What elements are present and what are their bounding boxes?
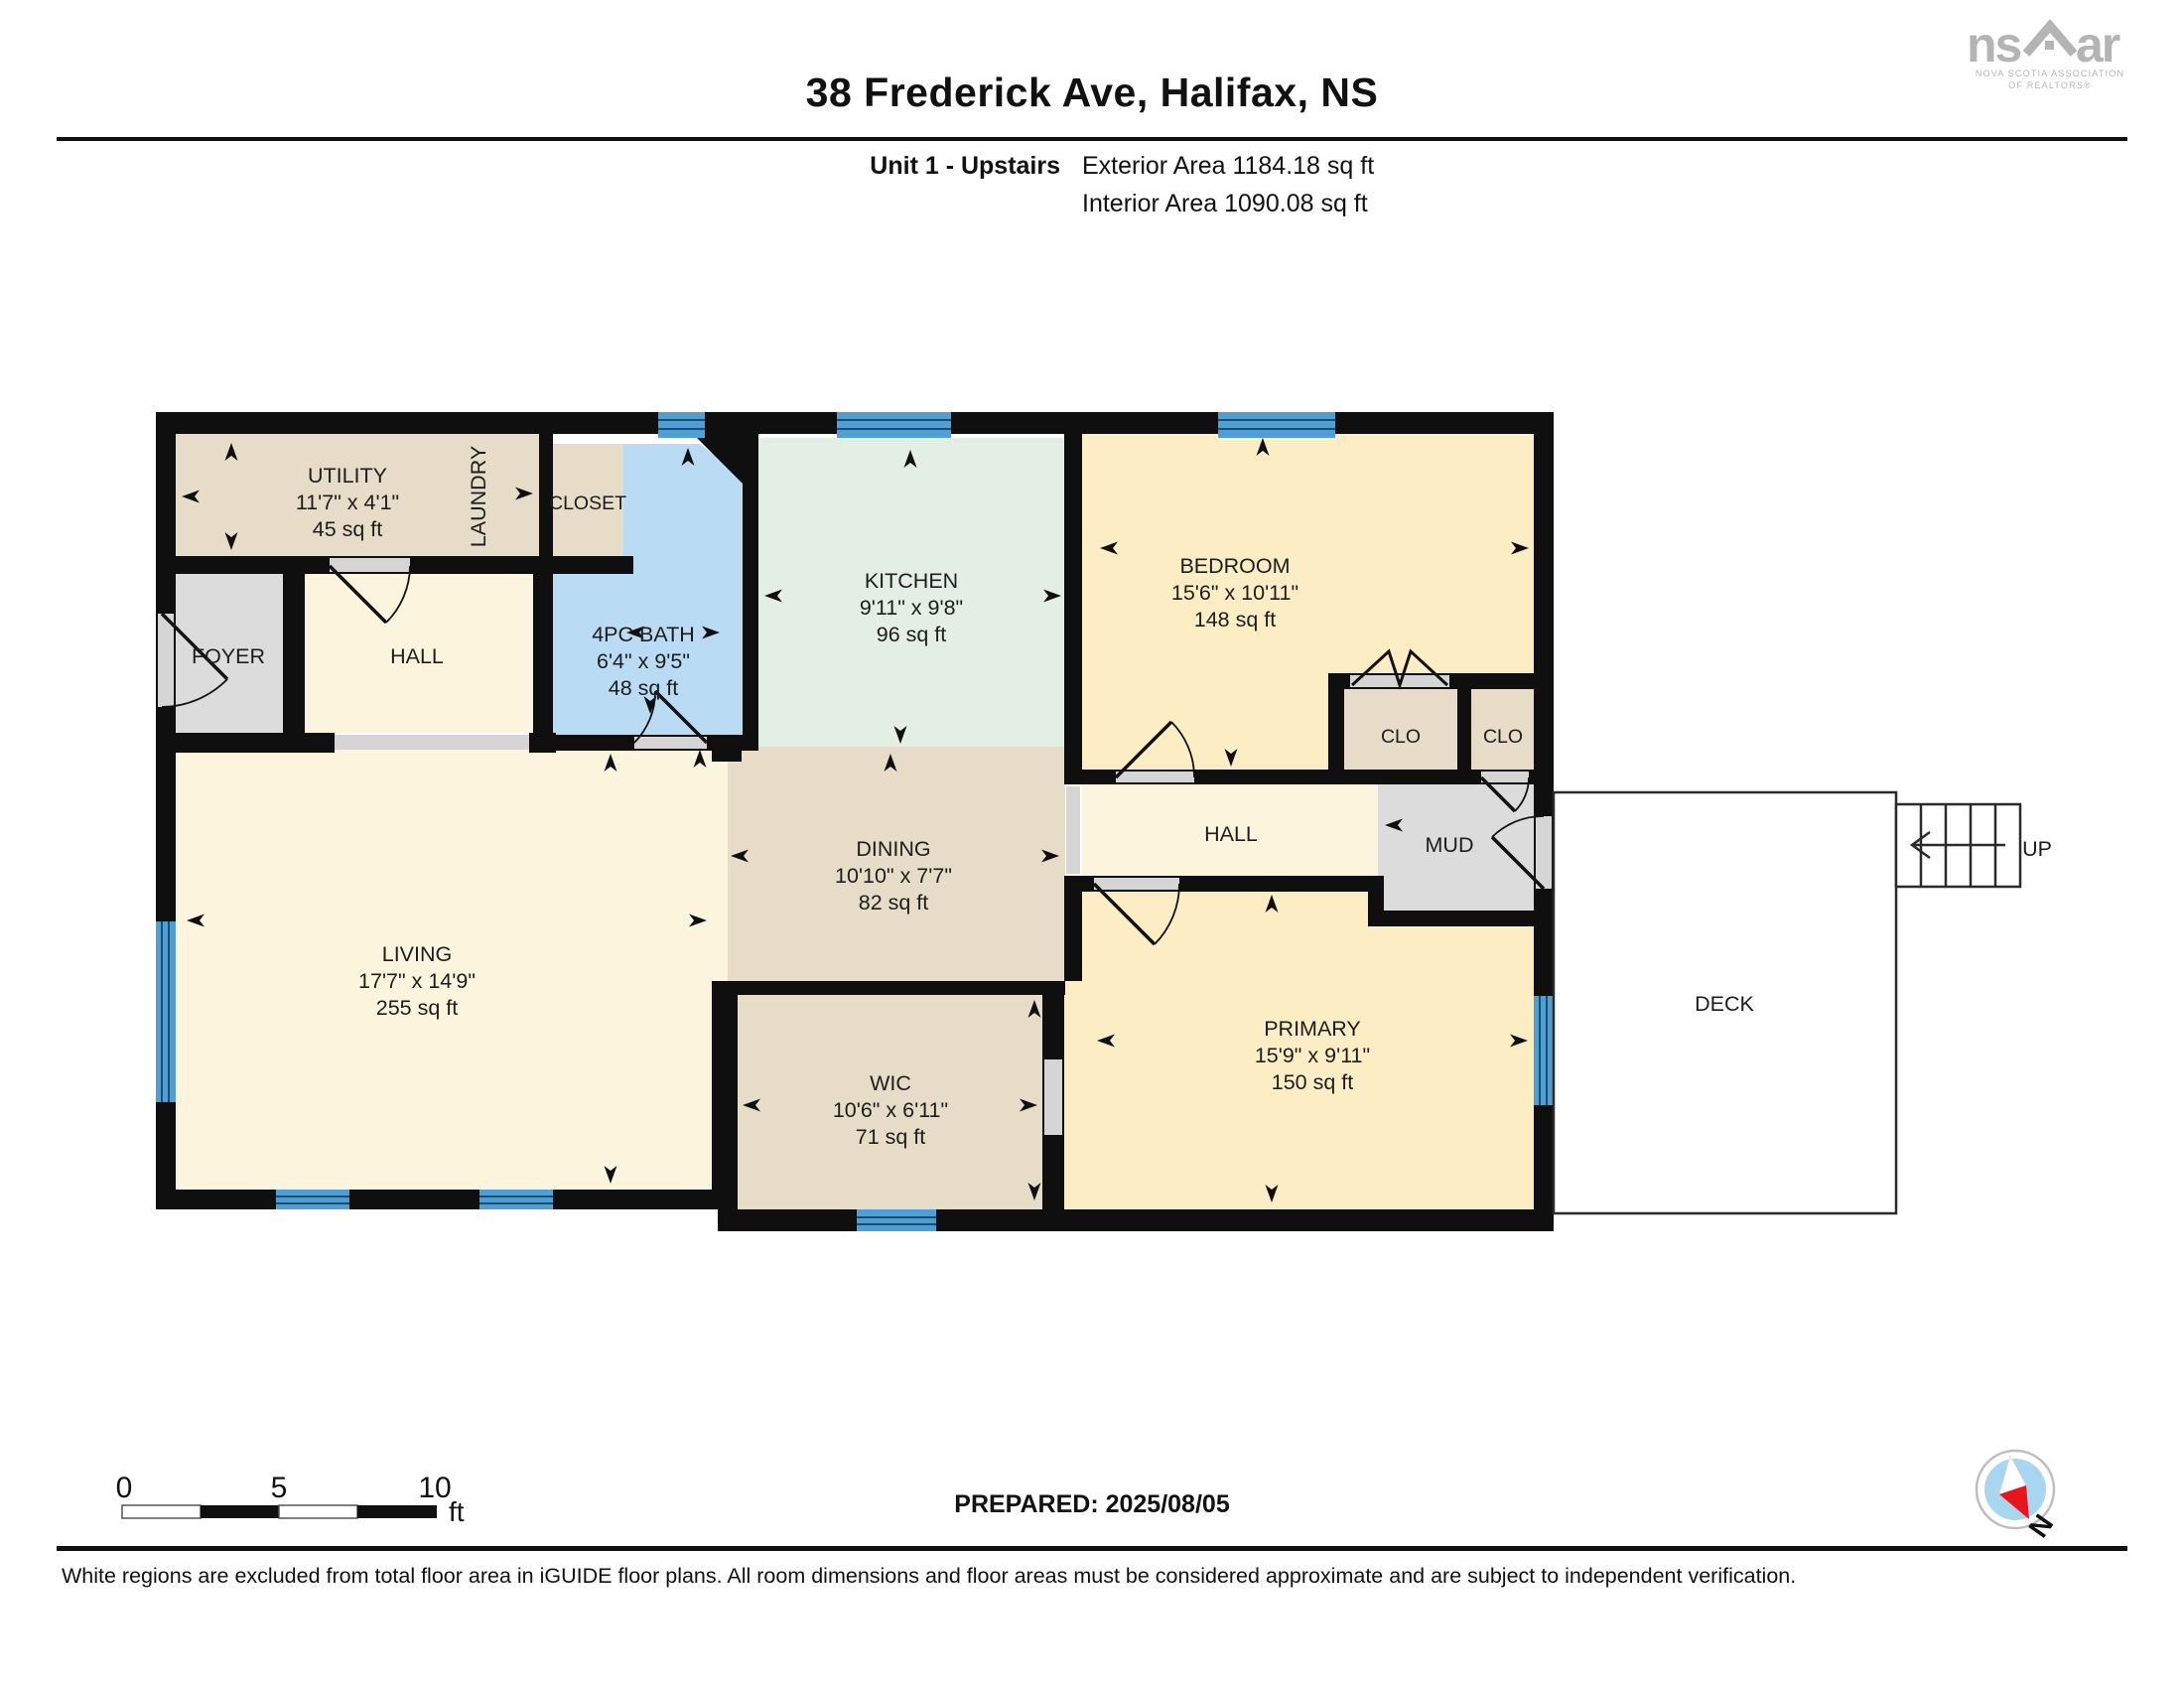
primary-dims: 15'9" x 9'11" xyxy=(1255,1044,1370,1067)
bath-dims: 6'4" x 9'5" xyxy=(597,649,690,673)
window xyxy=(479,1190,553,1209)
wall xyxy=(712,735,742,762)
window xyxy=(658,412,705,438)
dining-dims: 10'10" x 7'7" xyxy=(835,864,952,888)
wall xyxy=(1064,876,1082,981)
disclaimer-text: White regions are excluded from total fl… xyxy=(62,1564,2126,1589)
utility-label: UTILITY xyxy=(308,464,387,488)
hall-west-label: HALL xyxy=(390,644,444,668)
wall xyxy=(718,981,1065,995)
clo-right-label: CLO xyxy=(1483,726,1523,748)
bedroom-label: BEDROOM xyxy=(1179,554,1290,578)
wall xyxy=(1064,412,1082,784)
door-opening xyxy=(1116,772,1194,782)
door-opening xyxy=(1481,772,1529,782)
foyer-label: FOYER xyxy=(192,644,265,668)
window xyxy=(1218,412,1335,438)
wic-area: 71 sq ft xyxy=(856,1125,926,1149)
living-area: 255 sq ft xyxy=(376,996,458,1020)
clo-left-label: CLO xyxy=(1381,726,1421,748)
cased-opening xyxy=(335,735,529,750)
wic-dims: 10'6" x 6'11" xyxy=(833,1098,948,1122)
deck-label: DECK xyxy=(1695,992,1754,1016)
wall xyxy=(1328,673,1344,770)
wall xyxy=(533,574,553,735)
dining-area: 82 sq ft xyxy=(859,891,929,914)
utility-area: 45 sq ft xyxy=(313,517,383,541)
window xyxy=(276,1190,349,1209)
cased-opening xyxy=(1066,786,1080,874)
wall xyxy=(156,733,335,753)
footer-divider xyxy=(57,1546,2127,1551)
door-opening xyxy=(1044,1059,1062,1135)
floorplan-page: 38 Frederick Ave, Halifax, NS Unit 1 - U… xyxy=(0,0,2184,1688)
living-dims: 17'7" x 14'9" xyxy=(358,969,476,993)
wall xyxy=(529,733,556,753)
hall-east-label: HALL xyxy=(1204,822,1258,846)
floorplan-drawing: UTILITY 11'7" x 4'1" 45 sq ft LAUNDRY CL… xyxy=(0,0,2184,1688)
dining-label: DINING xyxy=(856,837,930,861)
primary-area: 150 sq ft xyxy=(1272,1070,1353,1094)
primary-label: PRIMARY xyxy=(1264,1017,1361,1041)
wic-label: WIC xyxy=(870,1071,911,1095)
door-opening xyxy=(158,614,174,707)
stairs-up xyxy=(1896,804,2020,887)
living-label: LIVING xyxy=(382,942,453,966)
bedroom-area: 148 sq ft xyxy=(1194,608,1276,632)
wall xyxy=(283,574,305,735)
door-opening xyxy=(1094,878,1179,890)
closet-label: CLOSET xyxy=(549,492,626,514)
laundry-label: LAUNDRY xyxy=(467,446,490,547)
bedroom-dims: 15'6" x 10'11" xyxy=(1171,581,1298,605)
door-opening xyxy=(330,558,410,572)
utility-dims: 11'7" x 4'1" xyxy=(296,491,399,514)
mud-label: MUD xyxy=(1426,833,1474,857)
window xyxy=(837,412,951,438)
wall xyxy=(743,412,758,751)
bath-label: 4PC BATH xyxy=(592,623,695,646)
wall xyxy=(718,1209,1554,1231)
stairs-up-label: UP xyxy=(2022,837,2052,861)
kitchen-area: 96 sq ft xyxy=(877,623,947,646)
window xyxy=(156,921,176,1102)
wall xyxy=(156,1190,738,1209)
door-opening xyxy=(634,737,707,749)
window xyxy=(1534,996,1554,1105)
wall xyxy=(712,981,738,1209)
wall xyxy=(1457,673,1471,770)
bath-area: 48 sq ft xyxy=(609,676,679,700)
kitchen-label: KITCHEN xyxy=(865,569,958,593)
door-opening xyxy=(1536,816,1552,889)
prepared-date: PREPARED: 2025/08/05 xyxy=(0,1490,2184,1519)
wall xyxy=(1368,911,1554,926)
window xyxy=(857,1209,936,1231)
kitchen-dims: 9'11" x 9'8" xyxy=(860,596,963,620)
room-living xyxy=(176,747,728,1190)
